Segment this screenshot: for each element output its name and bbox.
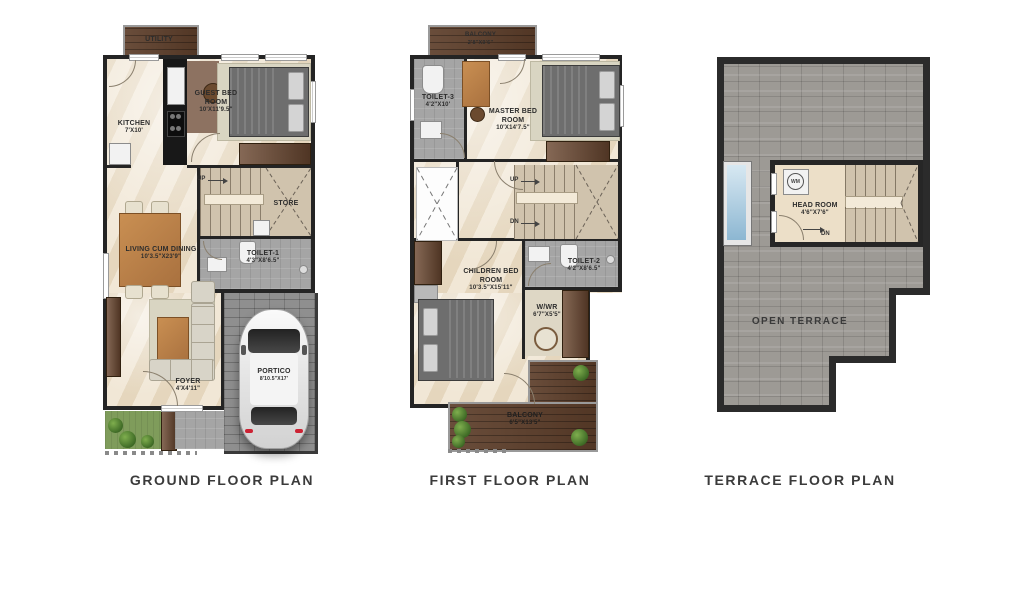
stairs-winder-icon (576, 165, 618, 239)
fridge (109, 143, 131, 165)
skylight-glass (727, 165, 746, 240)
guest-bed-label: GUEST BED ROOM 10'X11'9.5" (187, 89, 245, 115)
stove (167, 111, 185, 137)
window (221, 54, 259, 61)
wwr-wardrobe (562, 290, 589, 358)
open-terrace-name: OPEN TERRACE (735, 315, 865, 328)
wall-segment (923, 57, 930, 295)
store-label: STORE (261, 199, 311, 208)
wash-basin (534, 327, 558, 351)
plant-icon (571, 429, 588, 446)
shaft-cross-icon (417, 168, 457, 240)
car-mirror (241, 345, 246, 355)
armchair (191, 281, 215, 303)
wm-label: WM (787, 173, 804, 190)
door-arc (779, 215, 804, 240)
toilet3-wc (422, 65, 444, 94)
skylight-frame (723, 161, 752, 246)
car-roof: PORTICO 8'10.5"X17' (250, 353, 298, 405)
living-name: LIVING CUM DINING (105, 245, 217, 254)
plant-icon (452, 435, 465, 448)
ground-caption: GROUND FLOOR PLAN (112, 472, 332, 488)
open-terrace-label: OPEN TERRACE (735, 315, 865, 328)
store-name: STORE (261, 199, 311, 208)
open-shaft (416, 167, 458, 241)
toilet2-label: TOILET-2 4'2"X8'6.5" (552, 257, 616, 274)
ground-floor-plan: UTILITY (103, 25, 318, 457)
utility-name: UTILITY (125, 35, 193, 44)
taillight (245, 429, 253, 433)
portico-label: PORTICO 8'10.5"X17' (250, 367, 298, 383)
toilet2-dims: 4'2"X8'6.5" (552, 266, 616, 274)
plant-icon (452, 407, 467, 422)
wall-segment (717, 405, 836, 412)
wall-segment (103, 165, 131, 168)
toilet2-sink (528, 246, 550, 262)
bush-icon (119, 431, 136, 448)
driveway-edge (315, 293, 318, 453)
kitchen-name: KITCHEN (103, 119, 165, 128)
portico-name: PORTICO (250, 367, 298, 376)
master-bed-name: MASTER BED ROOM (480, 107, 546, 125)
driveway-edge (224, 451, 318, 454)
bush-icon (108, 418, 123, 433)
toilet2-name: TOILET-2 (552, 257, 616, 266)
living-label: LIVING CUM DINING 10'3.5"X23'9" (105, 245, 217, 262)
guest-bed-name: GUEST BED ROOM (187, 89, 245, 107)
first-caption: FIRST FLOOR PLAN (400, 472, 620, 488)
first-stairs (514, 165, 618, 239)
guest-wardrobe (239, 143, 311, 165)
wwr-name: W/WR (518, 303, 576, 312)
store-sink (253, 220, 270, 236)
foyer-name: FOYER (157, 377, 219, 386)
washing-machine: WM (783, 169, 809, 195)
wall-segment (200, 289, 315, 293)
kitchen-sink (167, 67, 185, 105)
wall-segment (221, 293, 224, 410)
bush-icon (141, 435, 154, 448)
dn-label: DN (821, 231, 830, 237)
children-bed (418, 299, 494, 381)
up-arrow-icon (208, 180, 224, 181)
dn-arrow-icon (521, 223, 536, 224)
balcony-bottom-label: BALCONY 6'5"X13'5" (488, 411, 562, 428)
foyer-dims: 4'X4'11" (157, 386, 219, 394)
toilet1-name: TOILET-1 (231, 249, 295, 258)
toilet3-name: TOILET-3 (410, 93, 466, 102)
shower-icon (299, 265, 308, 274)
entry-door-opening (161, 405, 203, 412)
terrace-stairs (845, 165, 918, 242)
balcony-top-name: BALCONY (430, 32, 531, 40)
toilet3-sink (420, 121, 442, 139)
children-bed-dims: 10'3.5"X15'11" (456, 285, 526, 293)
balcony-top-label: BALCONY 2'8"X9'6" (430, 32, 531, 47)
wall-segment (717, 57, 930, 64)
toilet1-dims: 4'3"X8'6.5" (231, 258, 295, 266)
dining-chair (125, 285, 143, 299)
first-floor-plan: BALCONY 2'8"X9'6" TOILET-3 4 (410, 25, 622, 450)
master-bed-dims: 10'X14'7.5" (480, 125, 546, 133)
wall-segment (889, 288, 896, 363)
master-wardrobe (546, 141, 610, 162)
up-label: UP (197, 176, 205, 182)
up-arrow-icon (521, 181, 536, 182)
floor-plan-sheet: UTILITY (0, 0, 1024, 595)
toilet1-label: TOILET-1 4'3"X8'6.5" (231, 249, 295, 266)
car-top-view: PORTICO 8'10.5"X17' (239, 309, 309, 449)
balcony-bottom-name: BALCONY (488, 411, 562, 420)
wwr-dims: 6'7"X5'5" (518, 312, 576, 320)
head-room: WM HEAD ROOM 4'6"X7'6" DN (770, 160, 923, 247)
master-bed-label: MASTER BED ROOM 10'X14'7.5" (480, 107, 546, 133)
children-wardrobe (414, 241, 442, 285)
balcony-bottom-dims: 6'5"X13'5" (488, 420, 562, 428)
head-room-name: HEAD ROOM (775, 201, 855, 210)
dn-label: DN (510, 219, 519, 225)
car-mirror (302, 345, 307, 355)
master-bed (542, 65, 620, 137)
toilet3-dims: 4'2"X10' (410, 102, 466, 110)
dining-chair (151, 285, 169, 299)
paver-dots (105, 451, 197, 455)
terrace-caption: TERRACE FLOOR PLAN (690, 472, 910, 488)
coffee-table (157, 317, 189, 363)
children-bed-name: CHILDREN BED ROOM (456, 267, 526, 285)
dresser (462, 61, 490, 107)
portico-dims: 8'10.5"X17' (250, 376, 298, 383)
toilet3-label: TOILET-3 4'2"X10' (410, 93, 466, 110)
wwr-label: W/WR 6'7"X5'5" (518, 303, 576, 320)
window (771, 173, 777, 195)
entry-path (175, 411, 224, 449)
guest-bed-dims: 10'X11'9.5" (187, 107, 245, 115)
children-bed-label: CHILDREN BED ROOM 10'3.5"X15'11" (456, 267, 526, 293)
foyer-label: FOYER 4'X4'11" (157, 377, 219, 394)
tv-unit (106, 297, 121, 377)
paver-dots (448, 449, 510, 453)
wall-segment (829, 356, 896, 363)
window (542, 54, 600, 61)
living-dims: 10'3.5"X23'9" (105, 254, 217, 262)
window (771, 211, 777, 233)
plant-icon (573, 365, 589, 381)
wall-segment (829, 356, 836, 412)
dn-arrow-icon (803, 229, 821, 230)
balcony-top-dims: 2'8"X9'6" (430, 40, 531, 47)
kitchen-dims: 7'X10' (103, 128, 165, 136)
window (265, 54, 307, 61)
utility-label: UTILITY (125, 35, 193, 44)
terrace-floor-plan: WM HEAD ROOM 4'6"X7'6" DN OPEN TERRACE (717, 57, 930, 412)
taillight (295, 429, 303, 433)
kitchen-label: KITCHEN 7'X10' (103, 119, 165, 136)
stairs-winder-icon (901, 165, 918, 242)
